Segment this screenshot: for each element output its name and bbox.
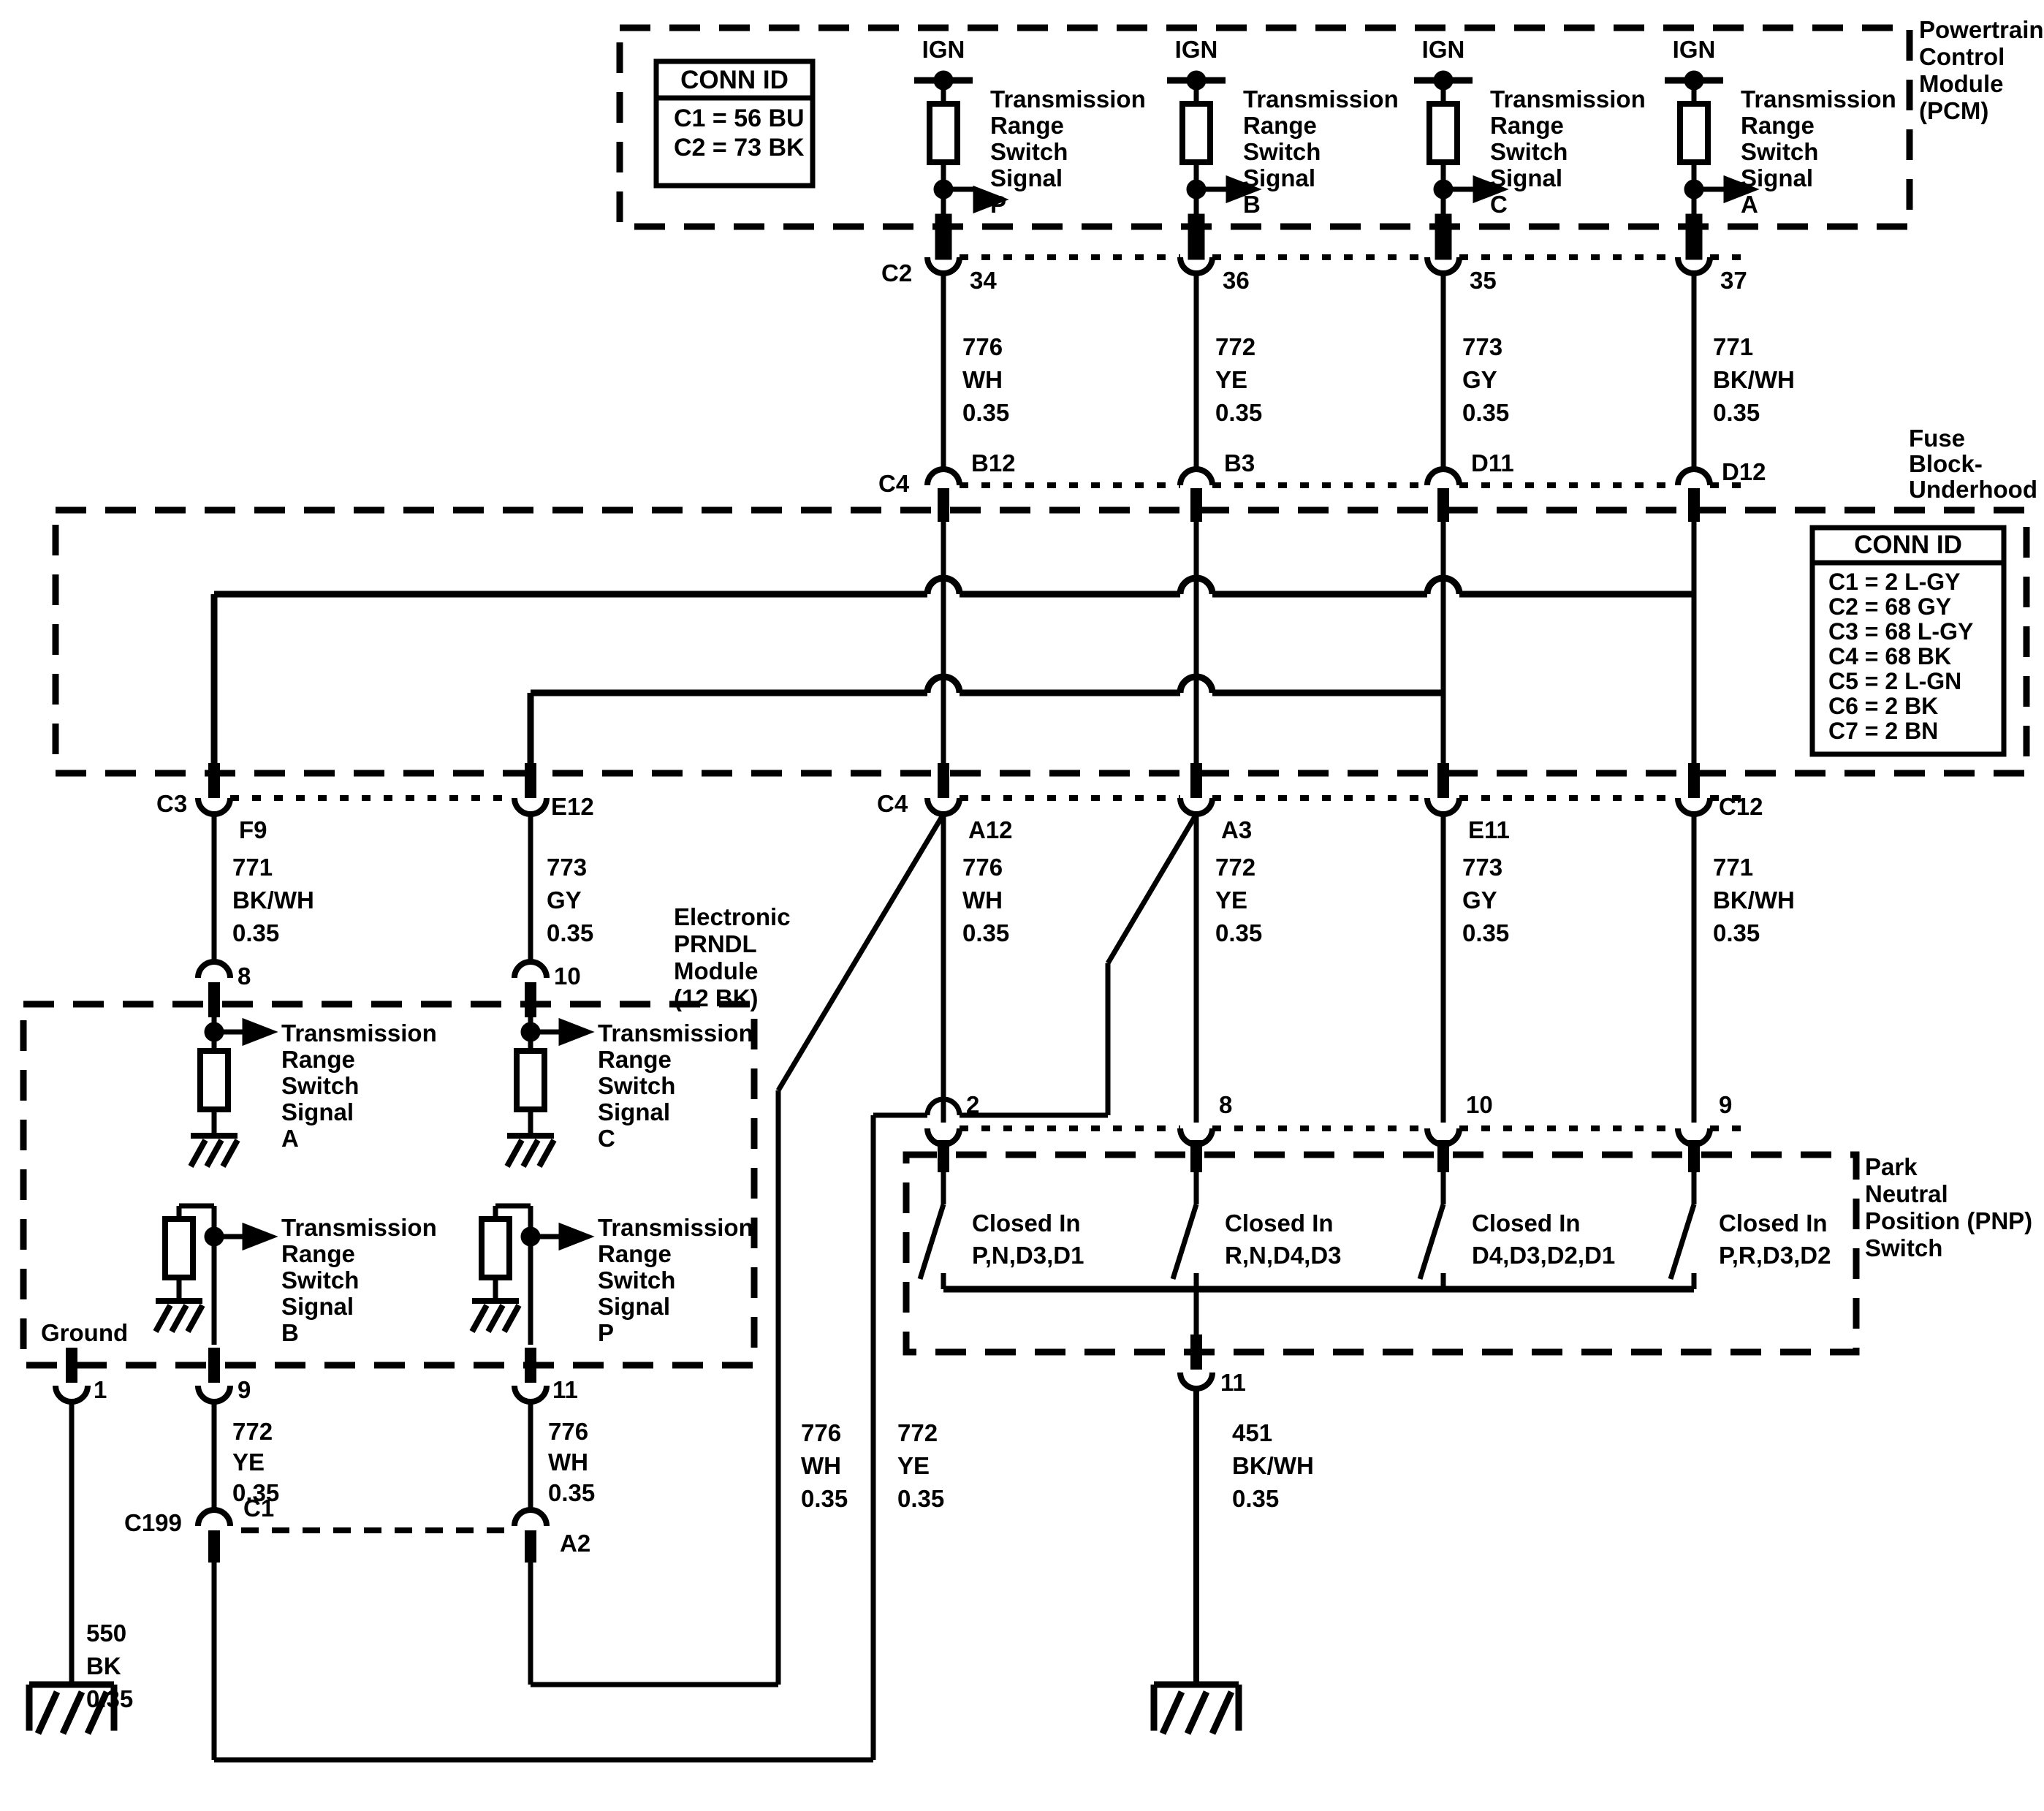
resistor-icon xyxy=(1429,104,1457,162)
pin-label-a12: A12 xyxy=(968,817,1013,843)
wire-label-771-bkwh: 771 BK/WH 0.35 xyxy=(232,851,314,949)
ground-icon xyxy=(1154,1685,1239,1734)
prndl-signal-c-label: Transmission Range Switch Signal C xyxy=(598,1020,753,1152)
prndl-module-label: Electronic PRNDL Module (12 BK) xyxy=(674,903,791,1011)
prndl-bottom-connectors xyxy=(56,1348,547,1402)
pin-label-9: 9 xyxy=(1719,1092,1732,1118)
pin-label-37: 37 xyxy=(1720,267,1747,294)
connector-arc-icon xyxy=(514,1510,547,1526)
pin-label-e12: E12 xyxy=(551,794,594,820)
wires-below-prndl xyxy=(72,1402,531,1760)
connector-arc-icon xyxy=(514,1386,547,1402)
connector-arc-icon xyxy=(198,798,230,814)
pnp-switch-label: Park Neutral Position (PNP) Switch xyxy=(1865,1153,2032,1261)
connector-arc-icon xyxy=(1427,798,1459,814)
ground-icon xyxy=(472,1301,519,1332)
pin-label-8: 8 xyxy=(1219,1092,1232,1118)
wire-label-772-ye: 772 YE 0.35 xyxy=(897,1416,944,1515)
pin-label-d12: D12 xyxy=(1722,459,1766,485)
pin-label-a2: A2 xyxy=(560,1530,590,1557)
connector-arc-icon xyxy=(514,962,547,978)
fuse-conn-id-row: C2 = 68 GY xyxy=(1828,595,1951,619)
pin-label-36: 36 xyxy=(1223,267,1250,294)
pin-label-10: 10 xyxy=(554,963,581,990)
ign-label: IGN xyxy=(1407,37,1480,63)
wire-label-776-wh: 776 WH 0.35 xyxy=(548,1416,595,1508)
switch-blade-icon xyxy=(1671,1204,1694,1279)
pin-label-1: 1 xyxy=(94,1377,107,1403)
connector-c2-label: C2 xyxy=(881,260,912,286)
wire-label-773-gy: 773 GY 0.35 xyxy=(1462,851,1509,949)
connector-row-c4-fuse-top xyxy=(927,469,1754,522)
resistor-icon xyxy=(482,1219,509,1277)
resistor-icon xyxy=(1680,104,1708,162)
pnp-switch1-label: Closed In P,N,D3,D1 xyxy=(972,1207,1084,1272)
fuse-internal-wiring xyxy=(214,503,1694,782)
pnp-switch2-label: Closed In R,N,D4,D3 xyxy=(1225,1207,1342,1272)
pcm-conn-id-row: C2 = 73 BK xyxy=(674,136,805,160)
pin-label-b12: B12 xyxy=(971,450,1016,477)
connector-arc-icon xyxy=(198,962,230,978)
connector-arc-icon xyxy=(198,1386,230,1402)
connector-c4-label: C4 xyxy=(878,471,909,497)
pin-label-35: 35 xyxy=(1470,267,1497,294)
pcm-signal-b-label: Transmission Range Switch Signal B xyxy=(1243,86,1399,218)
connector-arc-icon xyxy=(198,1510,230,1526)
pcm-signal-c-label: Transmission Range Switch Signal C xyxy=(1490,86,1646,218)
connector-arc-icon xyxy=(1678,469,1710,485)
resistor-icon xyxy=(1182,104,1210,162)
fuse-block-box-outline xyxy=(56,510,2026,773)
wire-label-771-bkwh: 771 BK/WH 0.35 xyxy=(1713,330,1795,429)
pcm-signal-a-label: Transmission Range Switch Signal A xyxy=(1741,86,1896,218)
ground-icon xyxy=(156,1301,202,1332)
fuse-conn-id-row: C4 = 68 BK xyxy=(1828,645,1951,669)
fuse-bus-773 xyxy=(531,677,1443,782)
fuse-conn-id-row: C5 = 2 L-GN xyxy=(1828,669,1961,694)
pin-label-34: 34 xyxy=(970,267,997,294)
wire-label-550-bk: 550 BK 0.35 xyxy=(86,1617,133,1715)
connector-c199-label: C199 xyxy=(124,1510,182,1536)
arrow-right-icon xyxy=(561,1022,588,1042)
connector-row-c2 xyxy=(927,257,1750,273)
arrow-right-icon xyxy=(561,1226,588,1247)
pnp-switch4-label: Closed In P,R,D3,D2 xyxy=(1719,1207,1831,1272)
pcm-signal-p-label: Transmission Range Switch Signal P xyxy=(990,86,1146,218)
connector-arc-icon xyxy=(1180,469,1212,485)
pnp-switch3-label: Closed In D4,D3,D2,D1 xyxy=(1472,1207,1615,1272)
pnp-bottom-connector xyxy=(1180,1334,1212,1685)
pin-label-b3: B3 xyxy=(1224,450,1255,477)
wire-label-772-ye: 772 YE 0.35 xyxy=(1215,851,1262,949)
fuse-conn-id-row: C7 = 2 BN xyxy=(1828,719,1938,743)
pin-label-9: 9 xyxy=(238,1377,251,1403)
pin-label-a3: A3 xyxy=(1221,817,1252,843)
switch-blade-icon xyxy=(1420,1204,1443,1279)
pin-label-d11: D11 xyxy=(1471,450,1514,477)
pin-label-10: 10 xyxy=(1466,1092,1493,1118)
resistor-icon xyxy=(165,1219,193,1277)
prndl-signal-b-label: Transmission Range Switch Signal B xyxy=(281,1215,437,1346)
wire-label-772-ye: 772 YE 0.35 xyxy=(1215,330,1262,429)
prndl-ground-label: Ground xyxy=(41,1320,128,1346)
connector-arc-icon xyxy=(1180,1373,1212,1389)
connector-c4-bottom-label: C4 xyxy=(877,791,908,817)
connector-arc-icon xyxy=(1427,469,1459,485)
ign-label: IGN xyxy=(907,37,980,63)
connector-arc-icon xyxy=(927,798,960,814)
wire-label-776-wh: 776 WH 0.35 xyxy=(801,1416,848,1515)
resistor-icon xyxy=(200,1051,228,1109)
fuse-conn-id-row: C1 = 2 L-GY xyxy=(1828,570,1961,594)
pin-label-11: 11 xyxy=(552,1377,578,1403)
resistor-icon xyxy=(517,1051,544,1109)
pin-label-11: 11 xyxy=(1220,1370,1246,1396)
wire-label-771-bkwh: 771 BK/WH 0.35 xyxy=(1713,851,1795,949)
pin-label-c1: C1 xyxy=(243,1495,274,1522)
connector-c3-label: C3 xyxy=(156,791,187,817)
fuse-conn-id-row: C6 = 2 BK xyxy=(1828,694,1938,718)
ign-label: IGN xyxy=(1657,37,1730,63)
pin-label-2: 2 xyxy=(966,1092,979,1118)
wiring-diagram: IGN IGN IGN IGN Transmission Range Switc… xyxy=(0,0,2044,1811)
wire-label-451-bkwh: 451 BK/WH 0.35 xyxy=(1232,1416,1314,1515)
wire-label-773-gy: 773 GY 0.35 xyxy=(1462,330,1509,429)
pin-label-f9: F9 xyxy=(239,817,267,843)
resistor-icon xyxy=(930,104,957,162)
wire-label-776-wh: 776 WH 0.35 xyxy=(962,851,1009,949)
arrow-right-icon xyxy=(245,1022,271,1042)
wire-label-776-wh: 776 WH 0.35 xyxy=(962,330,1009,429)
fuse-conn-id-title: CONN ID xyxy=(1812,532,2004,558)
prndl-signal-p-label: Transmission Range Switch Signal P xyxy=(598,1215,753,1346)
connector-arc-icon xyxy=(1678,798,1710,814)
ground-icon xyxy=(507,1136,554,1166)
fuse-conn-id-row: C3 = 68 L-GY xyxy=(1828,620,1973,644)
pin-label-8: 8 xyxy=(238,963,251,990)
ground-icon xyxy=(191,1136,238,1166)
connector-arc-icon xyxy=(927,469,960,485)
pcm-module-label: Powertrain Control Module (PCM) xyxy=(1919,16,2044,124)
pin-label-e11: E11 xyxy=(1468,817,1510,843)
fuse-block-label: Fuse Block- Underhood xyxy=(1909,425,2037,502)
pin-label-c12: C12 xyxy=(1719,794,1763,820)
ign-label: IGN xyxy=(1160,37,1233,63)
switch-blade-icon xyxy=(920,1204,943,1279)
pcm-conn-id-title: CONN ID xyxy=(656,67,813,94)
connector-arc-icon xyxy=(1180,798,1212,814)
connector-arc-icon xyxy=(514,798,547,814)
prndl-signal-a-label: Transmission Range Switch Signal A xyxy=(281,1020,437,1152)
wires-pcm-to-fuse xyxy=(943,273,1694,469)
connector-arc-icon xyxy=(56,1386,88,1402)
connector-row-pnp-top xyxy=(927,1128,1754,1172)
wire-label-773-gy: 773 GY 0.35 xyxy=(547,851,593,949)
arrow-right-icon xyxy=(245,1226,271,1247)
pcm-conn-id-row: C1 = 56 BU xyxy=(674,107,805,131)
switch-blade-icon xyxy=(1173,1204,1196,1279)
